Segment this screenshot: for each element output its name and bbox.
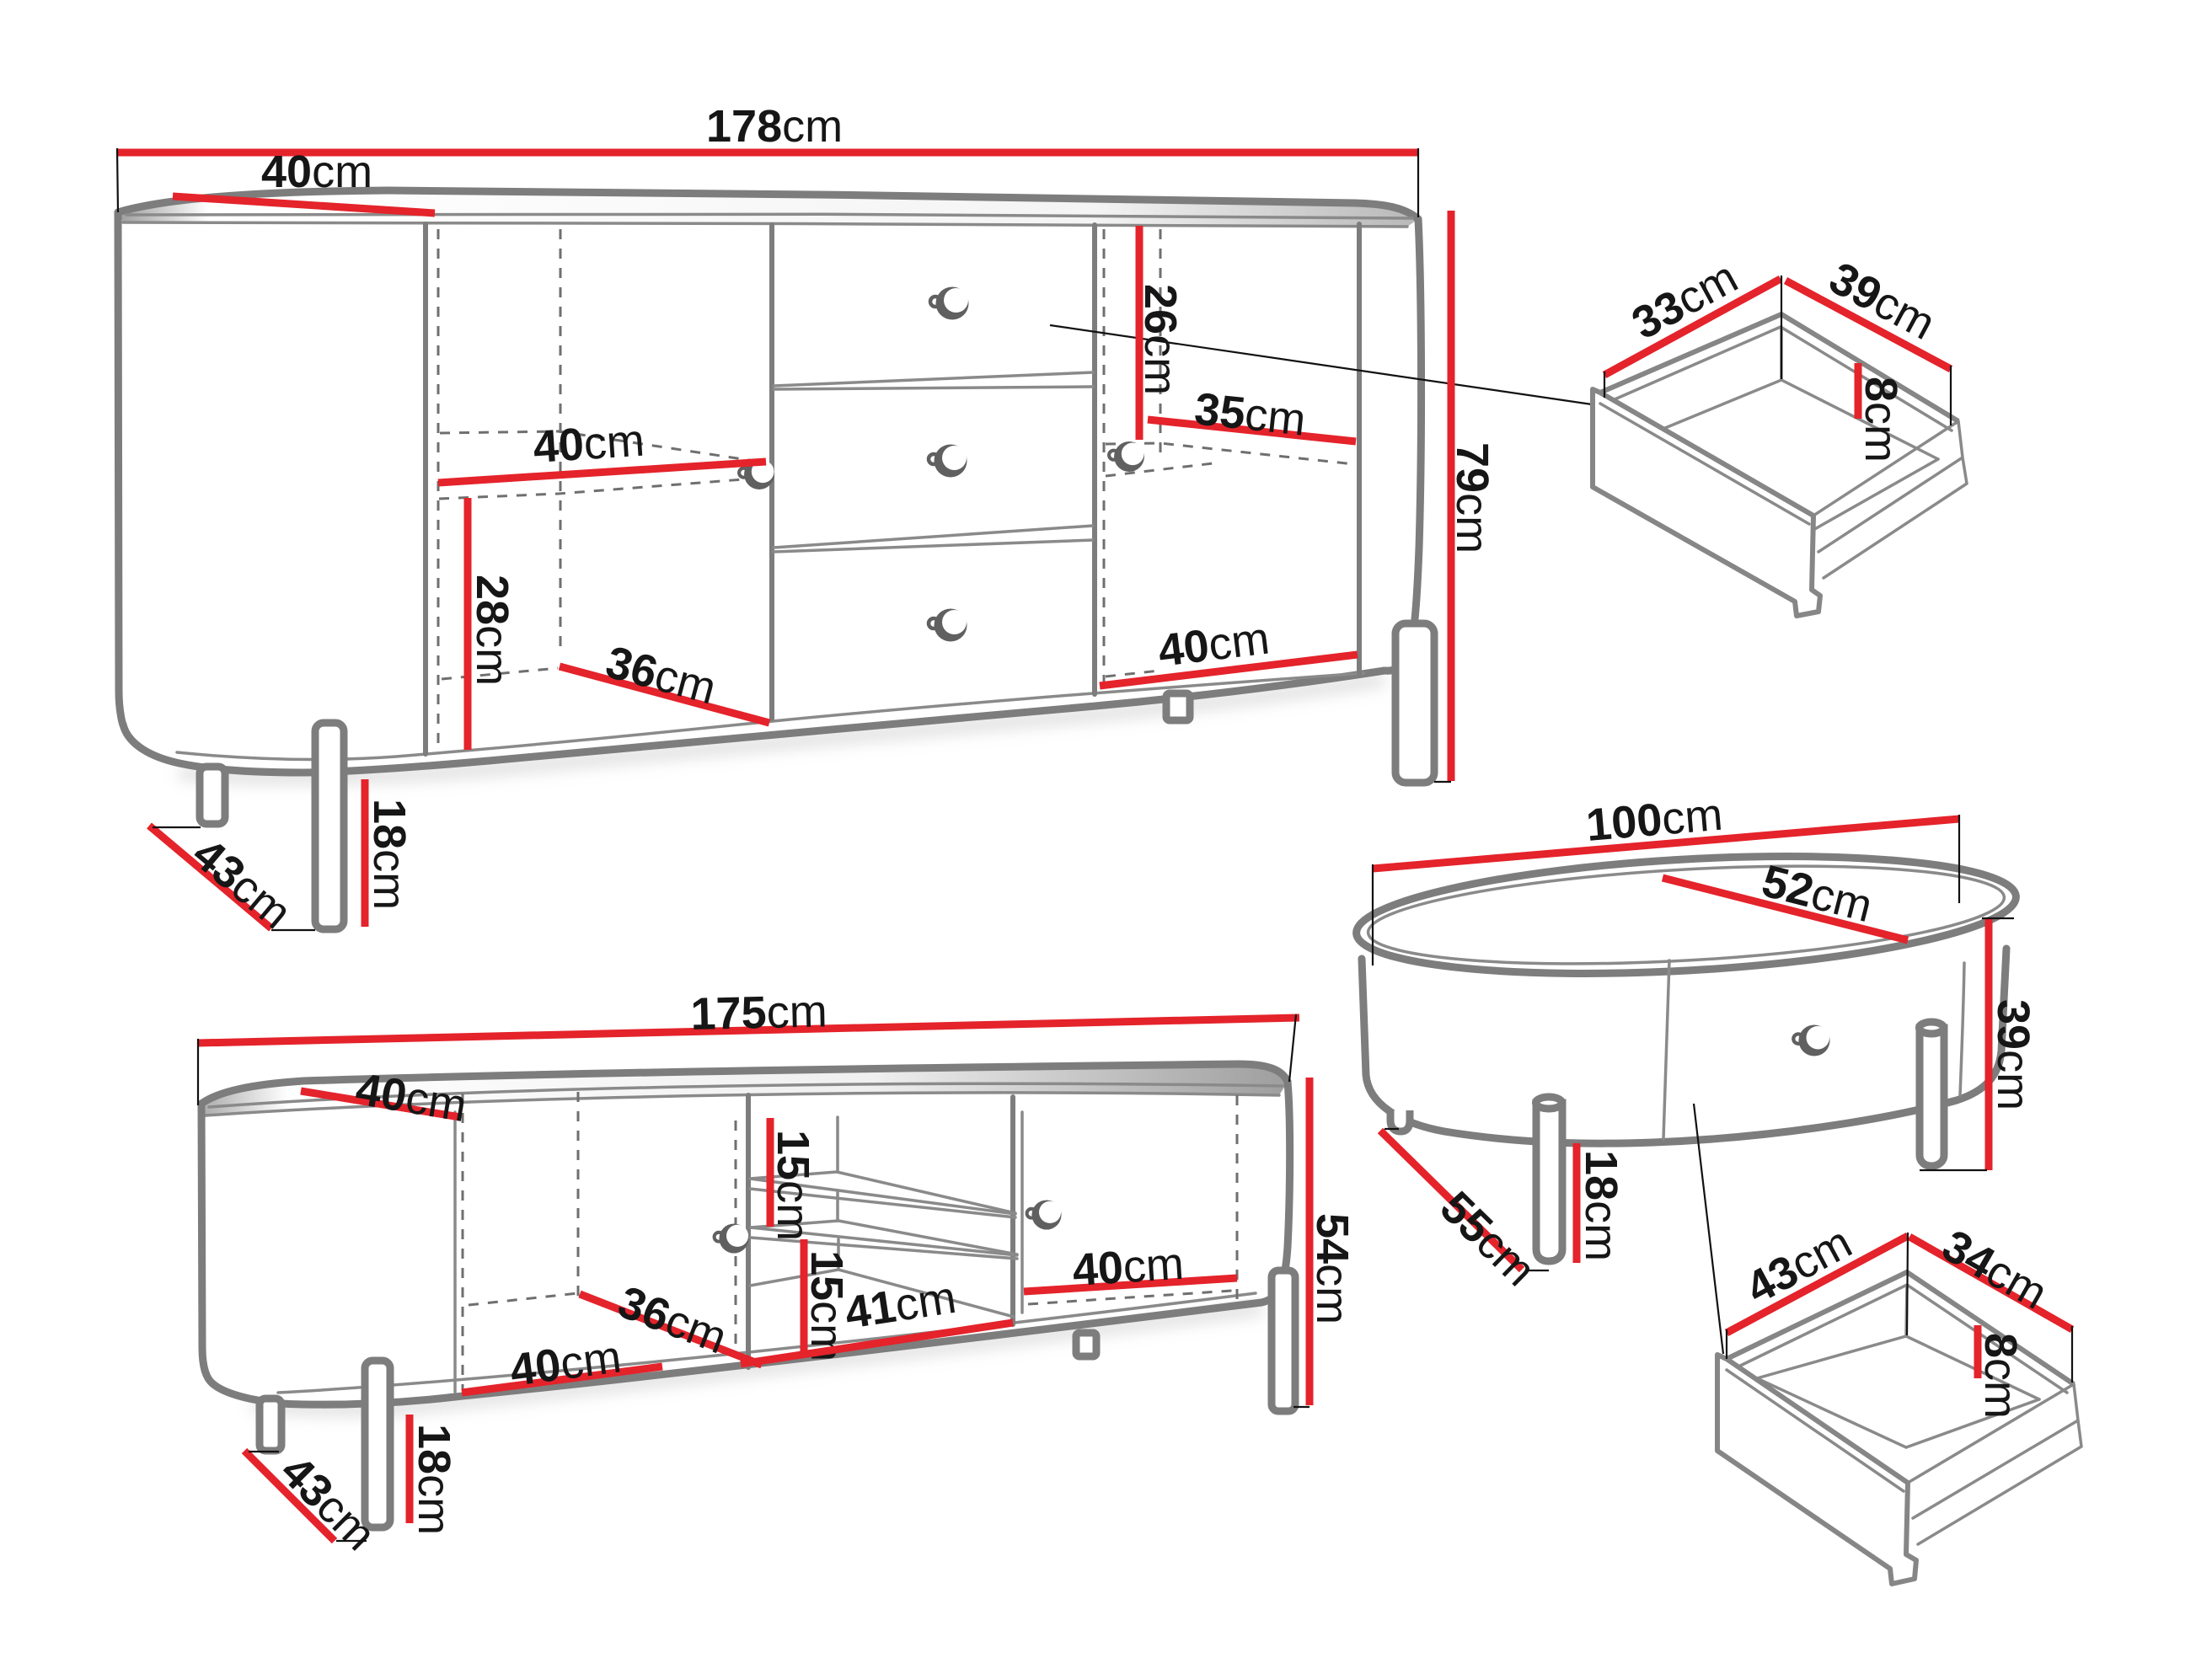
svg-text:79cm: 79cm bbox=[1447, 442, 1497, 554]
svg-text:8cm: 8cm bbox=[1975, 1333, 2026, 1419]
svg-text:28cm: 28cm bbox=[467, 575, 517, 686]
svg-text:15cm: 15cm bbox=[768, 1130, 818, 1241]
svg-text:178cm: 178cm bbox=[706, 101, 843, 152]
svg-text:26cm: 26cm bbox=[1135, 284, 1186, 395]
svg-text:18cm: 18cm bbox=[409, 1424, 459, 1535]
svg-text:40cm: 40cm bbox=[1071, 1238, 1186, 1296]
svg-text:8cm: 8cm bbox=[1856, 377, 1906, 463]
svg-text:40cm: 40cm bbox=[532, 415, 646, 473]
svg-text:18cm: 18cm bbox=[1576, 1150, 1626, 1261]
svg-text:40cm: 40cm bbox=[261, 147, 372, 197]
svg-text:54cm: 54cm bbox=[1307, 1213, 1358, 1324]
svg-text:39cm: 39cm bbox=[1988, 999, 2038, 1110]
svg-text:175cm: 175cm bbox=[690, 986, 827, 1040]
svg-text:18cm: 18cm bbox=[364, 799, 415, 910]
